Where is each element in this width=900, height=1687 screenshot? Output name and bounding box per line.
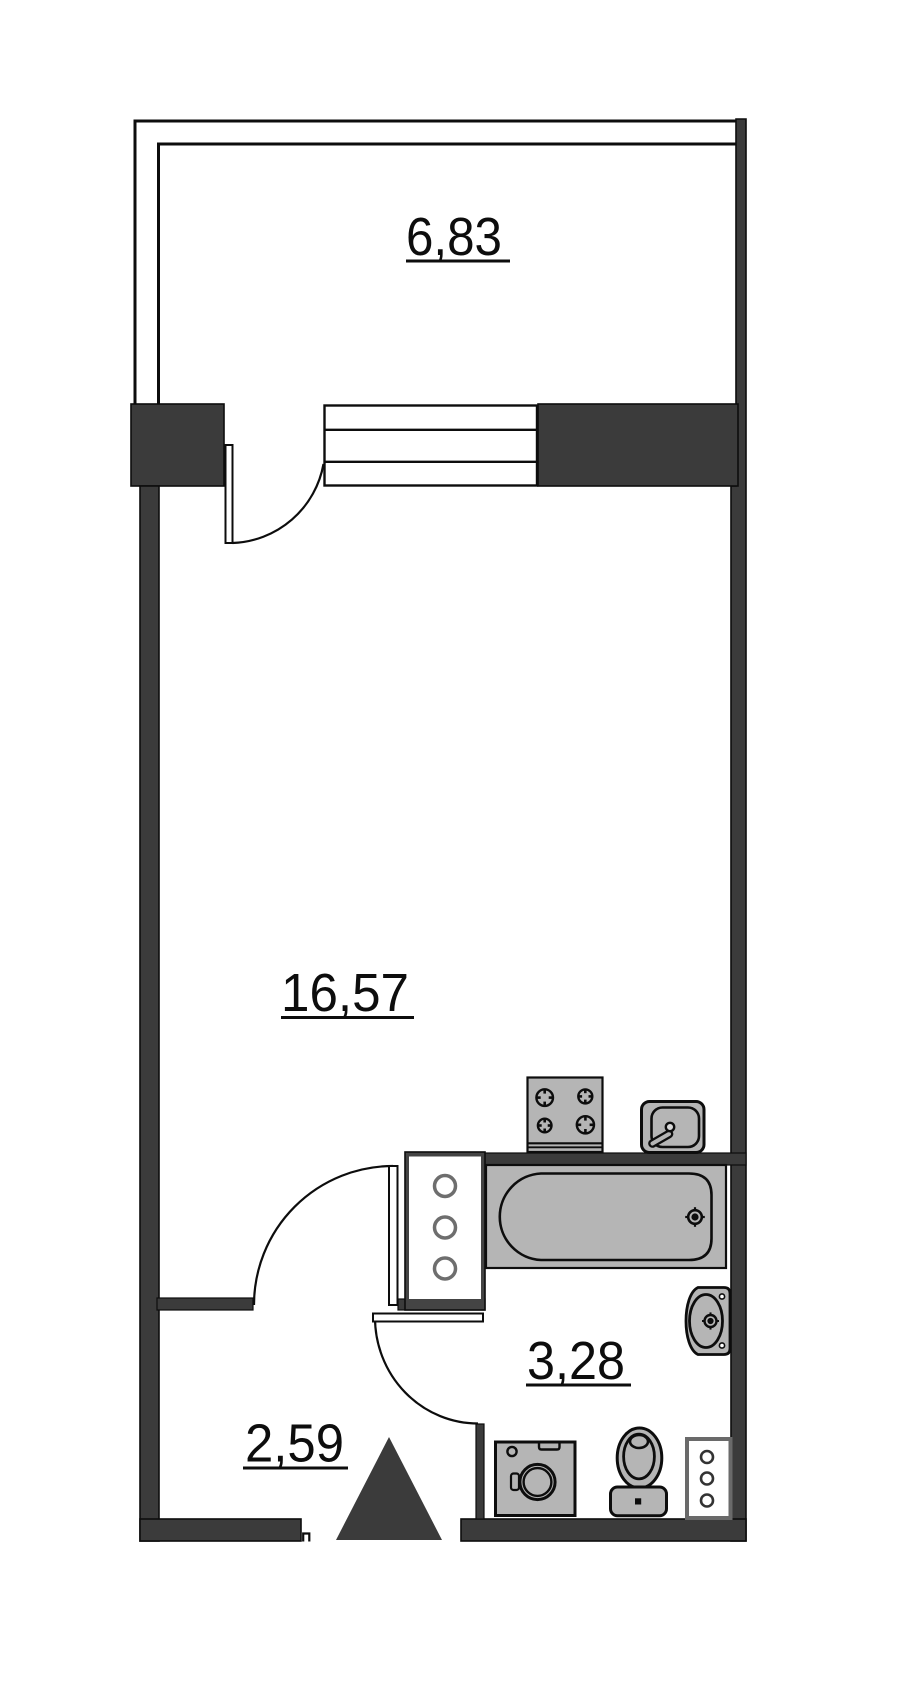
svg-text:6,83: 6,83 <box>406 207 502 267</box>
svg-text:2,59: 2,59 <box>245 1414 344 1474</box>
svg-text:3,28: 3,28 <box>527 1331 625 1391</box>
svg-text:16,57: 16,57 <box>281 963 409 1023</box>
